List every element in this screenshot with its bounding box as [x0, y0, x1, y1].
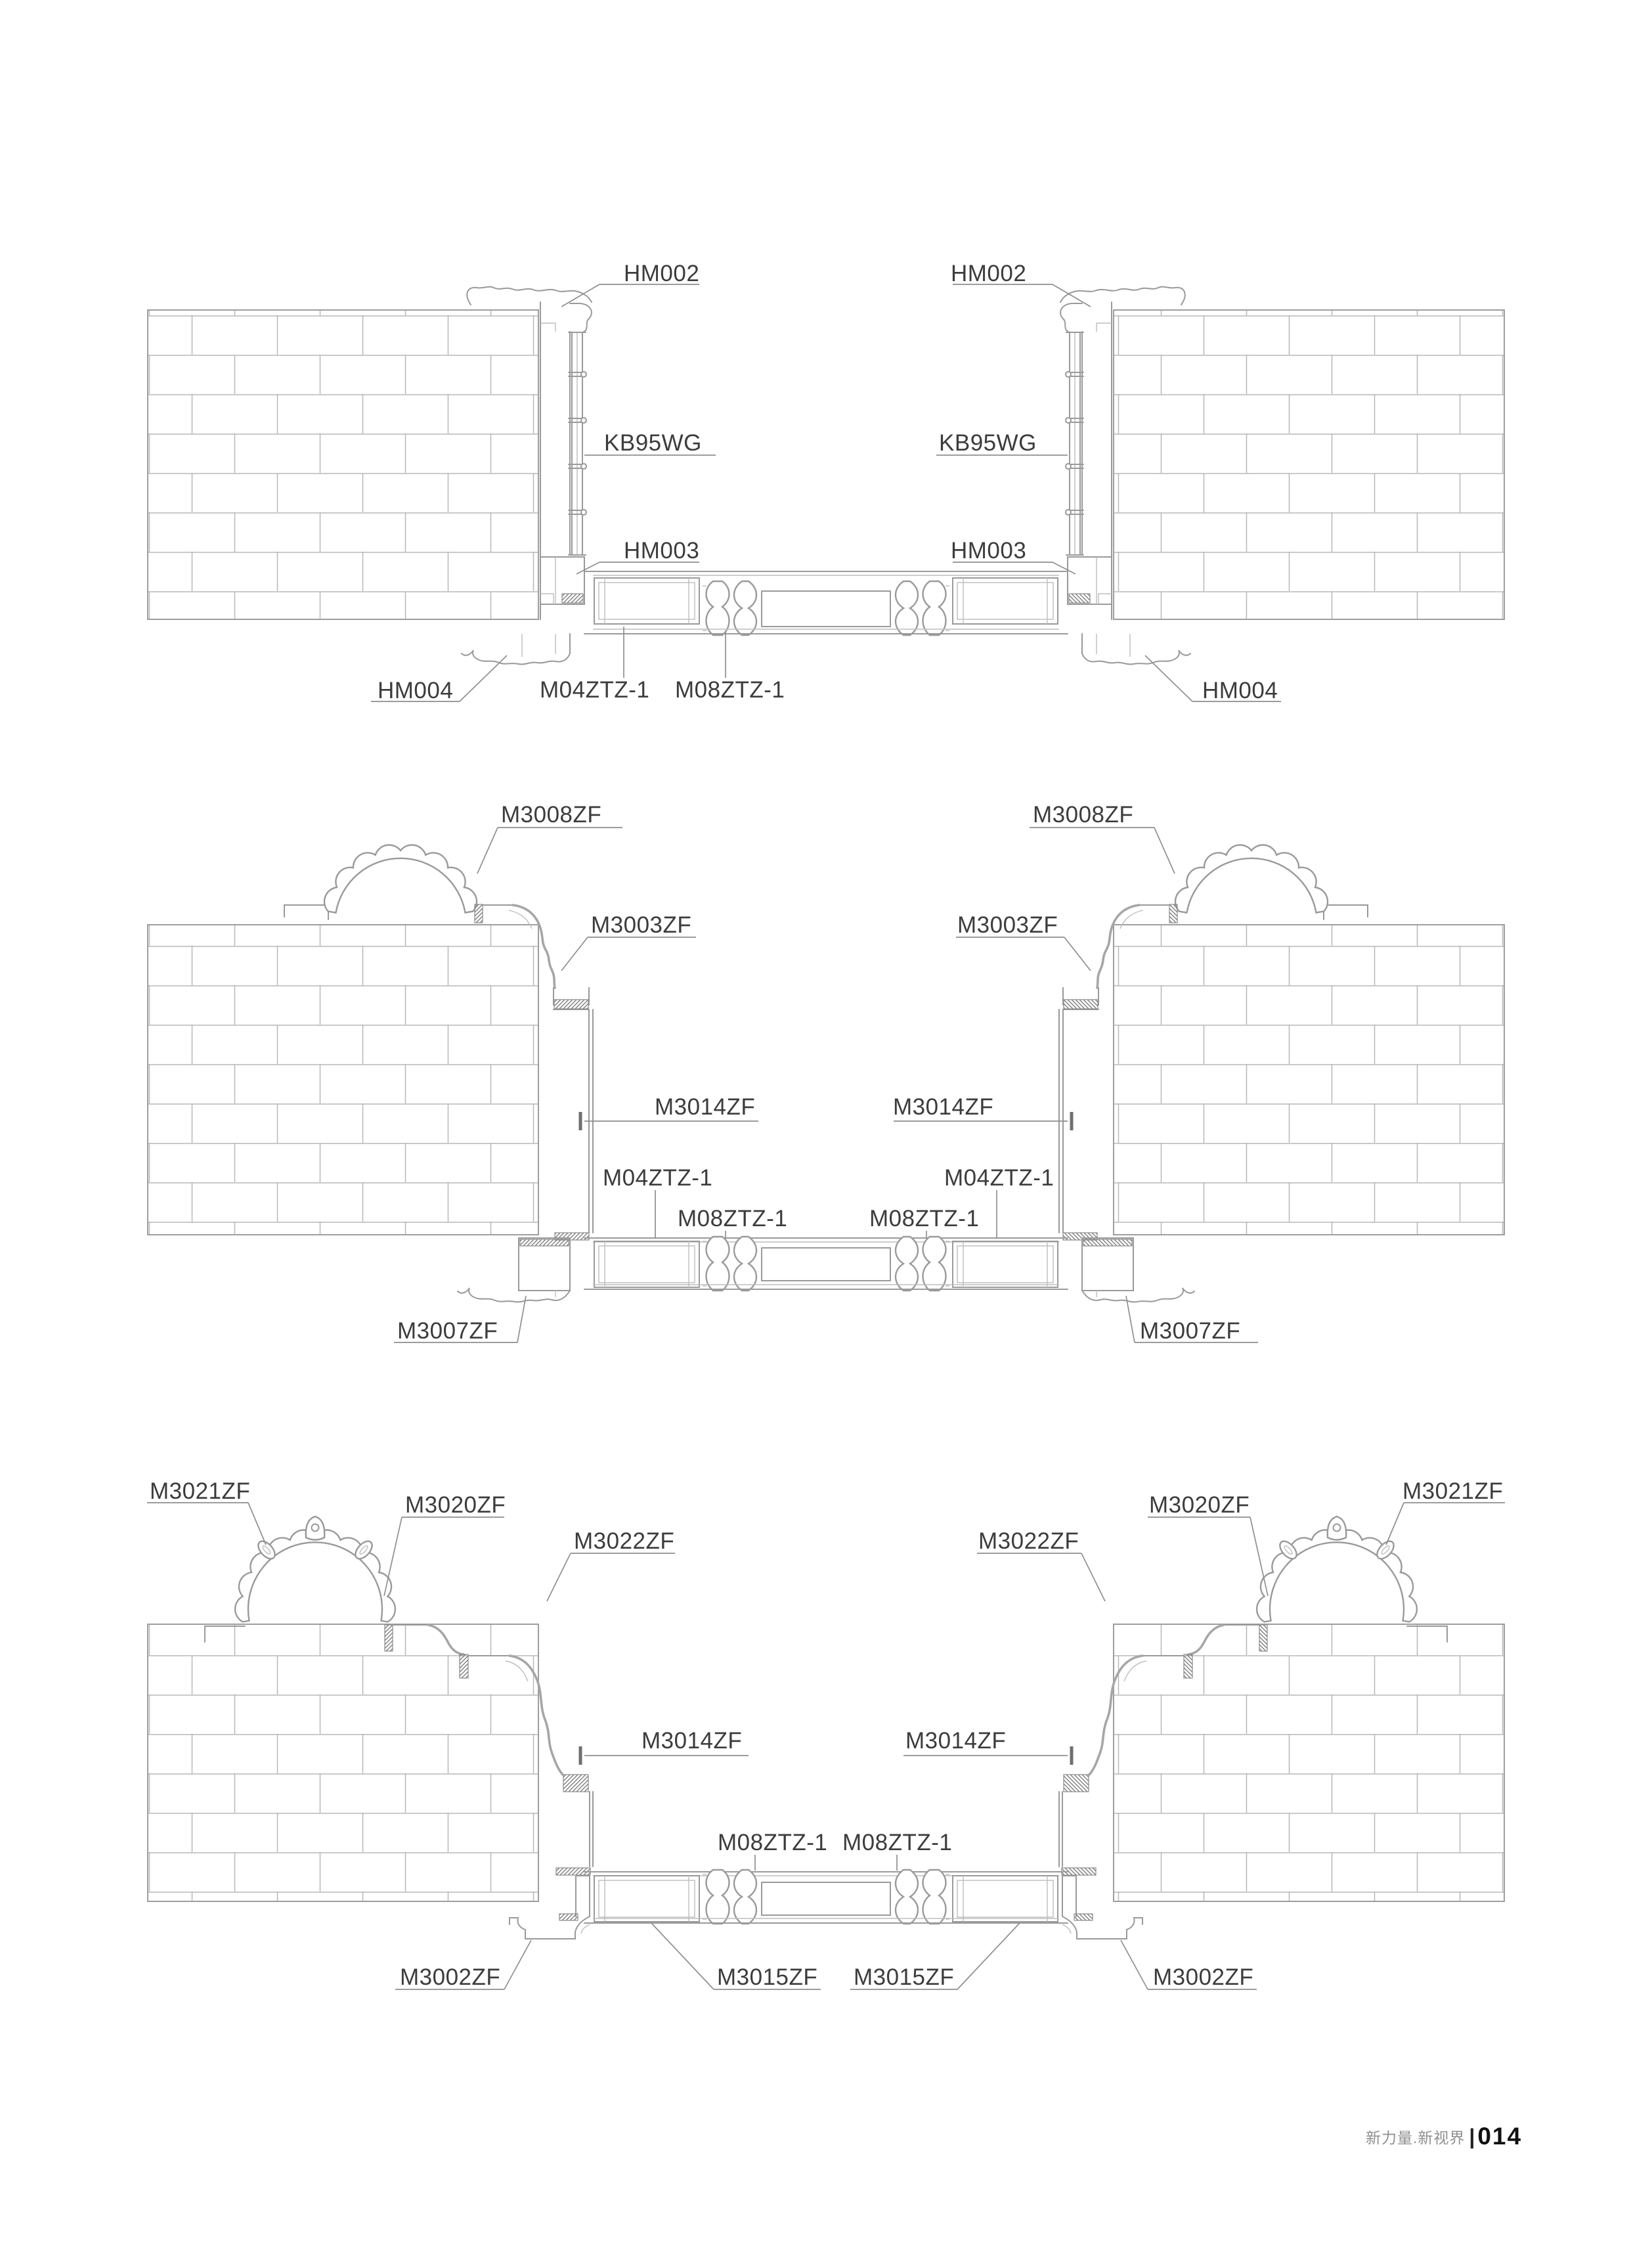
label-m3015zf-right: M3015ZF	[854, 1964, 954, 1990]
label-m04ztz-left: M04ZTZ-1	[603, 1165, 712, 1191]
label-m3014zf-right: M3014ZF	[893, 1094, 993, 1120]
label-m3014zf-left: M3014ZF	[641, 1728, 742, 1754]
label-m3002zf-left: M3002ZF	[400, 1964, 500, 1990]
label-m08ztz-left: M08ZTZ-1	[678, 1206, 787, 1231]
label-hm002-right: HM002	[951, 261, 1026, 286]
diagram-bottom: M3021ZF M3021ZF M3020ZF M3020ZF M3022ZF …	[147, 1478, 1505, 1990]
label-m04ztz-right: M04ZTZ-1	[944, 1165, 1054, 1191]
label-m08ztz-left: M08ZTZ-1	[675, 677, 785, 703]
label-m08ztz-left: M08ZTZ-1	[718, 1830, 827, 1855]
footer-slogan: 新力量.新视界	[1366, 2125, 1465, 2148]
catalog-page: HM002 HM002 KB95WG KB95WG HM003 HM003 HM…	[0, 0, 1652, 2258]
fixing-clip	[385, 1625, 393, 1651]
label-m3007zf-left: M3007ZF	[397, 1318, 498, 1344]
label-m3022zf-right: M3022ZF	[978, 1528, 1079, 1554]
footer-divider: |	[1469, 2125, 1475, 2149]
sill-shoe-trim	[510, 1914, 590, 1939]
label-m3007zf-right: M3007ZF	[1140, 1318, 1240, 1344]
brick-wall	[148, 310, 538, 619]
head-cap-profile	[570, 303, 592, 332]
pediment-shoulder	[284, 905, 328, 919]
page-footer: 新力量.新视界|014	[1366, 2123, 1536, 2150]
label-m04ztz-left: M04ZTZ-1	[540, 677, 649, 703]
label-m3020zf-right: M3020ZF	[1149, 1492, 1250, 1518]
label-m08ztz-right: M08ZTZ-1	[842, 1830, 952, 1855]
label-m3008zf-right: M3008ZF	[1033, 802, 1133, 828]
keystone-finial	[306, 1516, 324, 1540]
label-hm003-left: HM003	[624, 538, 699, 564]
label-kb95wg-left: KB95WG	[604, 430, 702, 456]
label-hm002-left: HM002	[624, 261, 699, 286]
brick-wall	[148, 925, 538, 1235]
outer-sill-trim	[462, 634, 570, 664]
label-m3014zf-right: M3014ZF	[905, 1728, 1006, 1754]
scalloped-arch-pediment	[324, 845, 477, 913]
label-m3022zf-left: M3022ZF	[574, 1528, 674, 1554]
label-m3021zf-right: M3021ZF	[1402, 1478, 1503, 1504]
break-line-squiggle	[467, 287, 592, 305]
label-m3002zf-right: M3002ZF	[1153, 1964, 1253, 1990]
outer-sill-trim	[458, 1238, 570, 1302]
label-m3020zf-left: M3020ZF	[405, 1492, 506, 1518]
jamb-frame-profile	[590, 1792, 593, 1867]
jamb-extrusion-kb95wg	[569, 332, 586, 555]
label-hm003-right: HM003	[951, 538, 1026, 564]
label-hm004-left: HM004	[378, 678, 453, 703]
sill-assembly	[584, 1237, 826, 1291]
frame-foot	[555, 1233, 589, 1240]
label-kb95wg-right: KB95WG	[939, 430, 1037, 456]
technical-drawing: HM002 HM002 KB95WG KB95WG HM003 HM003 HM…	[0, 0, 1652, 2258]
label-m3003zf-left: M3003ZF	[591, 912, 691, 938]
label-m3021zf-left: M3021ZF	[150, 1478, 250, 1504]
label-hm004-right: HM004	[1202, 678, 1278, 703]
label-m3015zf-left: M3015ZF	[717, 1964, 817, 1990]
label-m08ztz-right: M08ZTZ-1	[869, 1206, 979, 1231]
diagram-middle: M3008ZF M3008ZF M3003ZF M3003ZF M3014ZF …	[148, 802, 1504, 1344]
sill-assembly	[584, 1870, 826, 1924]
fixing-clip	[475, 904, 483, 923]
fixing-clip	[460, 1654, 468, 1678]
brick-wall	[148, 1624, 538, 1901]
label-m3003zf-right: M3003ZF	[957, 912, 1058, 938]
sill-assembly	[584, 571, 826, 635]
label-m3014zf-left: M3014ZF	[655, 1094, 755, 1120]
label-m3008zf-left: M3008ZF	[501, 802, 601, 828]
fixing-clip	[563, 1775, 588, 1792]
footer-page-number: 014	[1477, 2123, 1522, 2150]
arch-ornaments	[255, 1516, 376, 1562]
jamb-base-bracket	[540, 557, 584, 604]
fixing-clip	[554, 1000, 588, 1009]
diagram-top: HM002 HM002 KB95WG KB95WG HM003 HM003 HM…	[148, 261, 1504, 703]
